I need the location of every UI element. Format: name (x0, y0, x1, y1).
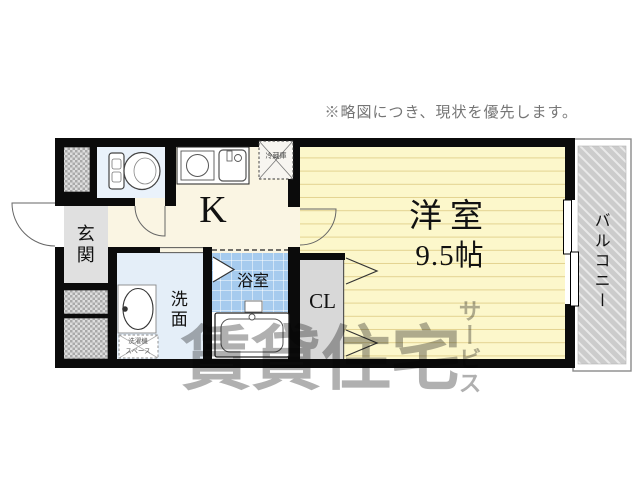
label-washroom: 洗面 (167, 290, 186, 330)
label-bathroom: 浴室 (224, 273, 282, 291)
kitchen-sink (219, 150, 246, 181)
label-kitchen: K (190, 190, 236, 232)
label-washer-space: 洗濯機 スペース (118, 337, 158, 357)
label-entrance: 玄関 (74, 224, 94, 266)
washbasin (118, 285, 156, 333)
western-room-name: 洋室 (372, 198, 528, 234)
western-room-size: 9.5帖 (372, 241, 528, 273)
floorplan-drawing (0, 0, 640, 480)
toilet-fixture (109, 153, 160, 190)
label-closet: CL (302, 290, 343, 313)
washer-space-line1: 洗濯機 (118, 337, 158, 347)
bath-step (245, 301, 262, 312)
label-refrigerator: 冷蔵庫 (259, 153, 293, 161)
faucet-knob (235, 155, 242, 162)
label-western-room: 洋室 9.5帖 (372, 198, 528, 273)
washer-space-line2: スペース (118, 347, 158, 357)
window-pane-2 (571, 252, 579, 306)
window-pane-1 (564, 200, 572, 254)
kitchen-counter (177, 147, 249, 184)
closet-edge-line (343, 253, 344, 359)
disclaimer-note: ※略図につき、現状を優先します。 (300, 105, 578, 122)
entrance-door-swing (12, 203, 55, 246)
floorplan-page: ※略図につき、現状を優先します。 玄関 K 冷蔵庫 洋室 9.5帖 CL 洗面 … (0, 0, 640, 480)
faucet-stem (227, 151, 232, 161)
label-balcony: バルコニー (591, 212, 609, 312)
